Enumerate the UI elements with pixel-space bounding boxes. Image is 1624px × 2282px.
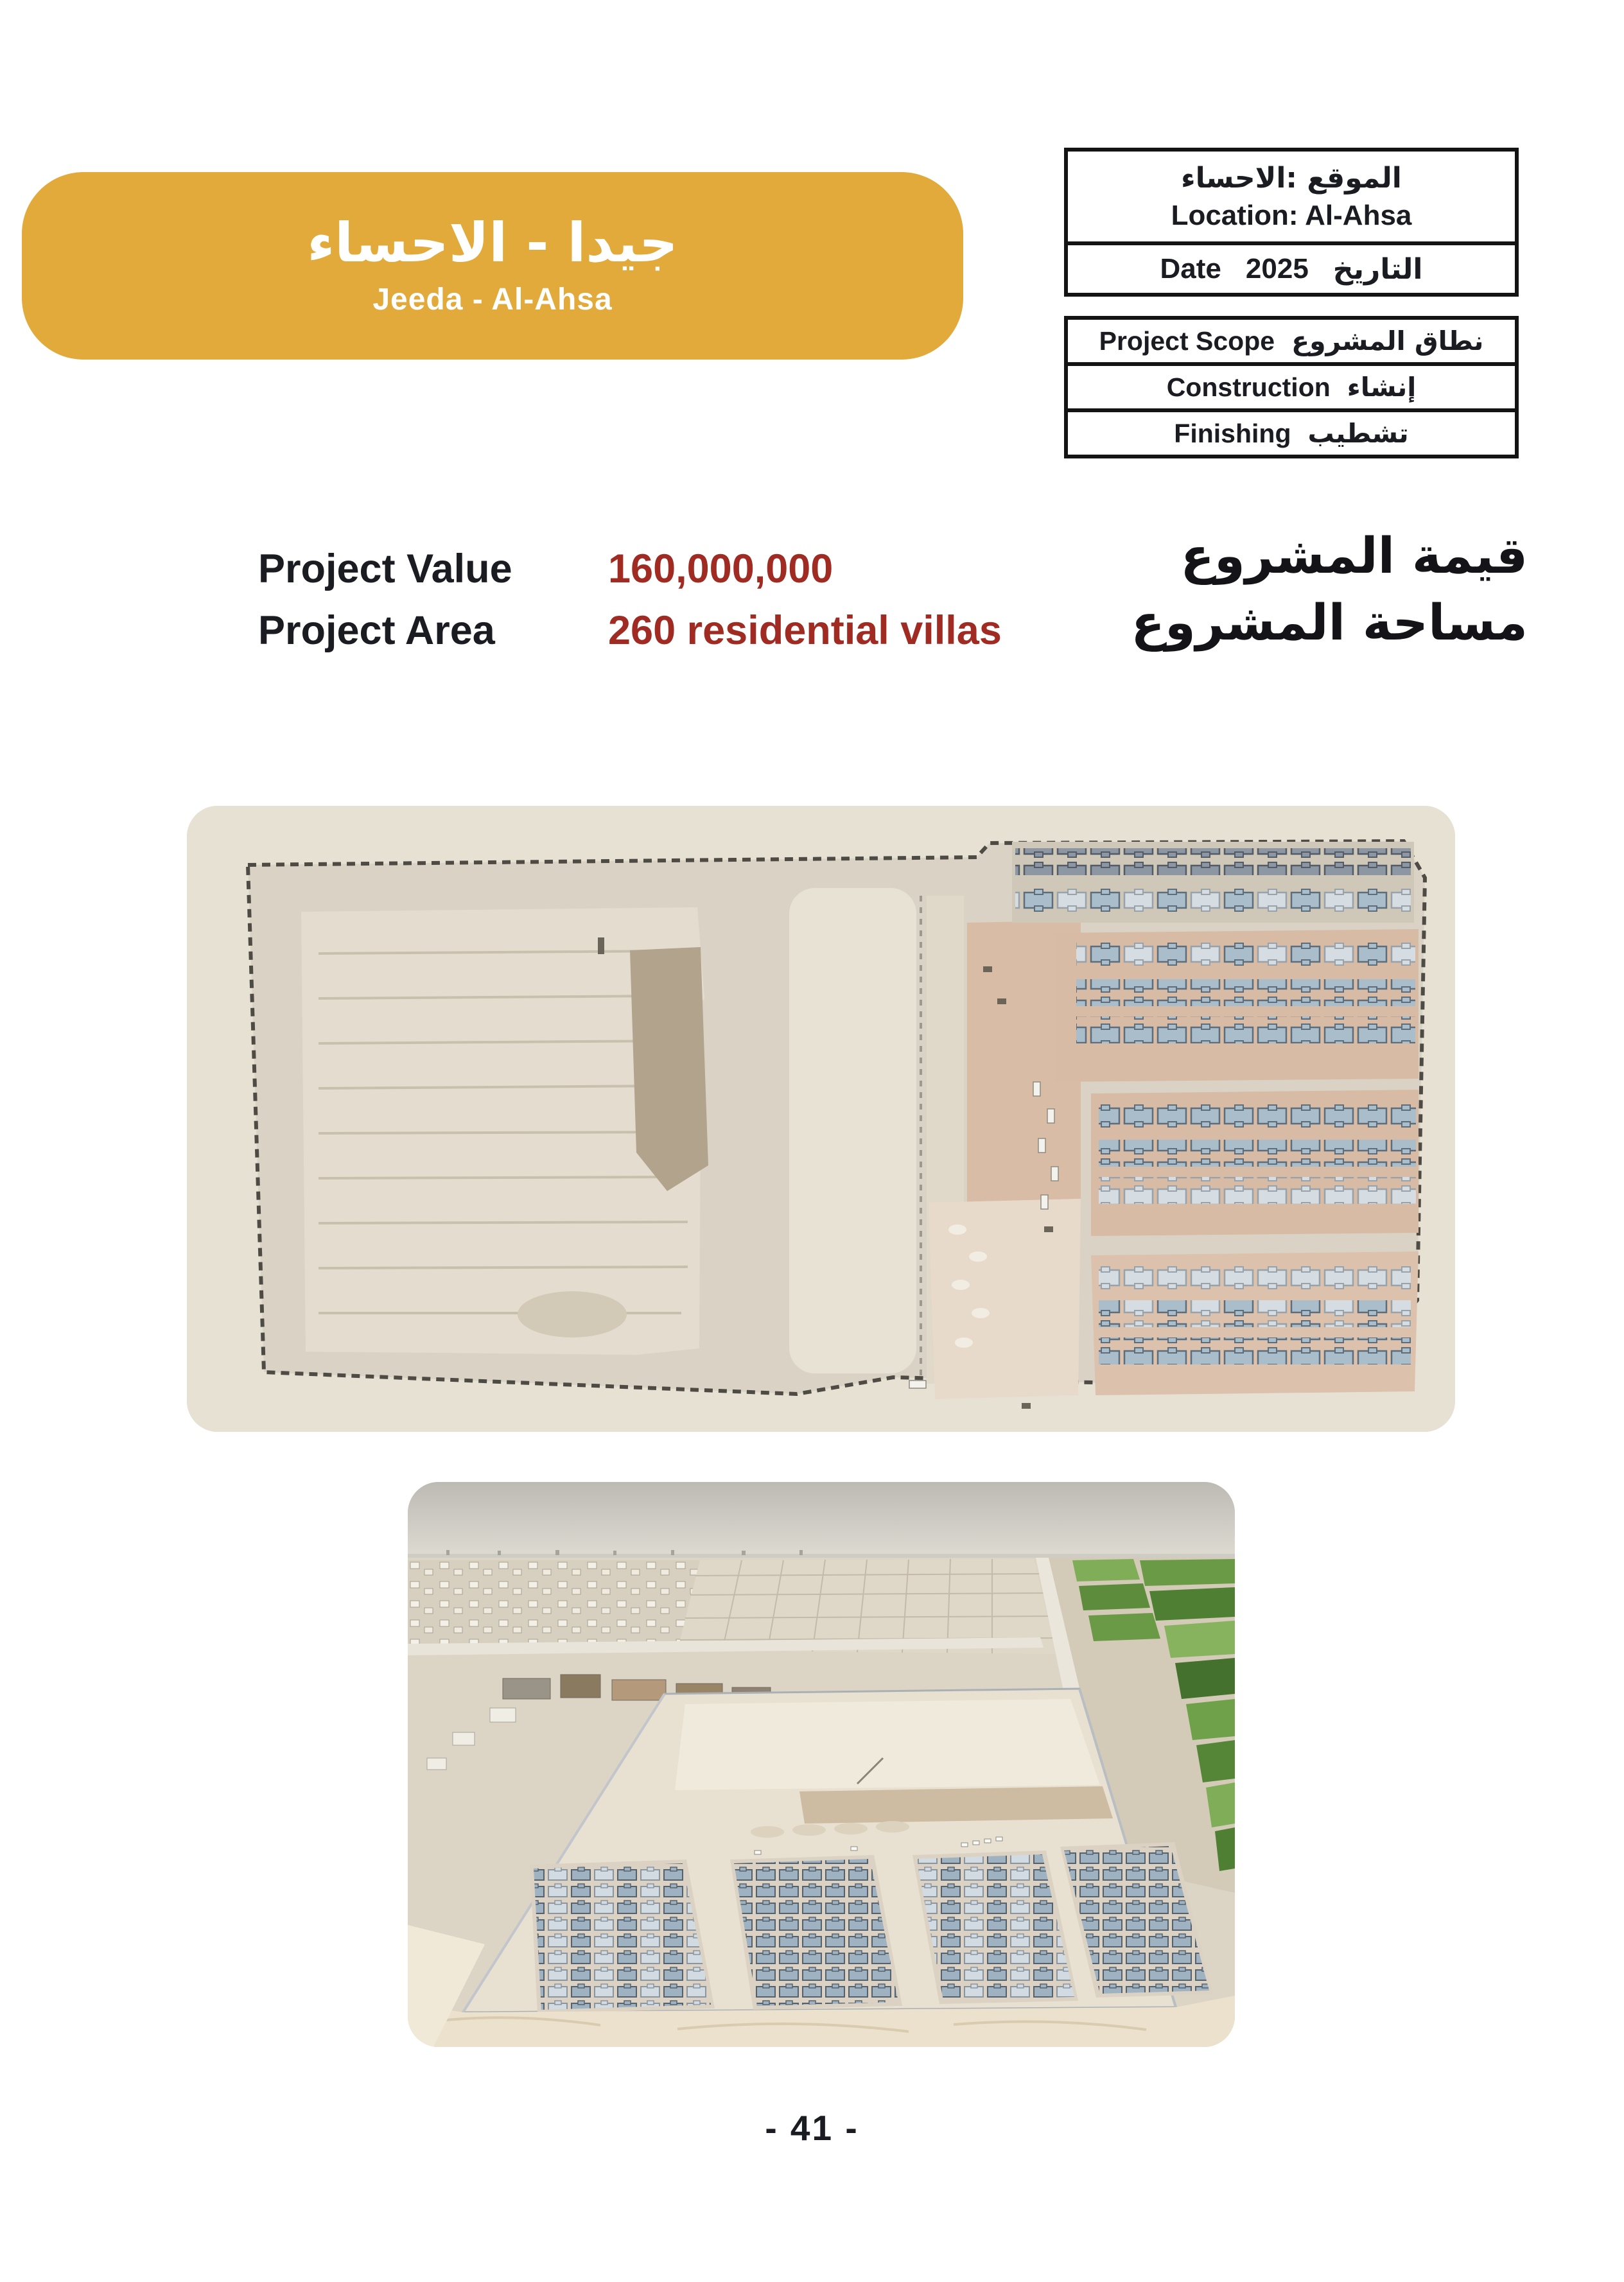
finishing-label-english: Finishing [1174,419,1291,449]
date-value: 2025 [1246,253,1309,285]
project-value-label-arabic: قيمة المشروع [1180,528,1528,585]
location-date-box: الموقع :الاحساء Location: Al-Ahsa Date 2… [1064,148,1519,297]
project-area-label-arabic: مساحة المشروع [1131,595,1528,652]
scope-header-row: Project Scope نطاق المشروع [1068,320,1515,366]
scope-label-arabic: نطاق المشروع [1291,326,1483,356]
project-value-amount: 160,000,000 [608,546,833,592]
construction-row: Construction إنشاء [1068,366,1515,412]
aerial-photo-site-plan [187,806,1455,1432]
finishing-label-arabic: تشطيب [1308,418,1409,449]
location-label-arabic: الموقع :الاحساء [1181,162,1402,195]
site-plan-illustration [187,806,1455,1432]
project-value-label: Project Value [258,546,608,592]
date-label-english: Date [1160,253,1221,285]
date-label-arabic: التاريخ [1333,253,1423,286]
location-row: الموقع :الاحساء Location: Al-Ahsa [1068,152,1515,245]
construction-label-english: Construction [1167,372,1331,403]
aerial-photo-oblique-view [408,1482,1235,2047]
project-area-label: Project Area [258,607,608,654]
location-label-english: Location: Al-Ahsa [1171,200,1412,232]
project-area-value: 260 residential villas [608,607,1002,654]
oblique-view-illustration [408,1482,1235,2047]
finishing-row: Finishing تشطيب [1068,412,1515,455]
construction-label-arabic: إنشاء [1347,372,1417,403]
date-row: Date 2025 التاريخ [1068,245,1515,293]
project-area-row: Project Area 260 residential villas [258,607,1002,654]
scope-label-english: Project Scope [1099,326,1275,356]
project-title-english: Jeeda - Al-Ahsa [372,282,612,317]
project-value-row: Project Value 160,000,000 [258,546,833,592]
project-title-banner: جيدا - الاحساء Jeeda - Al-Ahsa [22,172,963,360]
project-scope-box: Project Scope نطاق المشروع Construction … [1064,316,1519,458]
page-number: - 41 - [0,2107,1624,2148]
project-title-arabic: جيدا - الاحساء [307,214,677,271]
